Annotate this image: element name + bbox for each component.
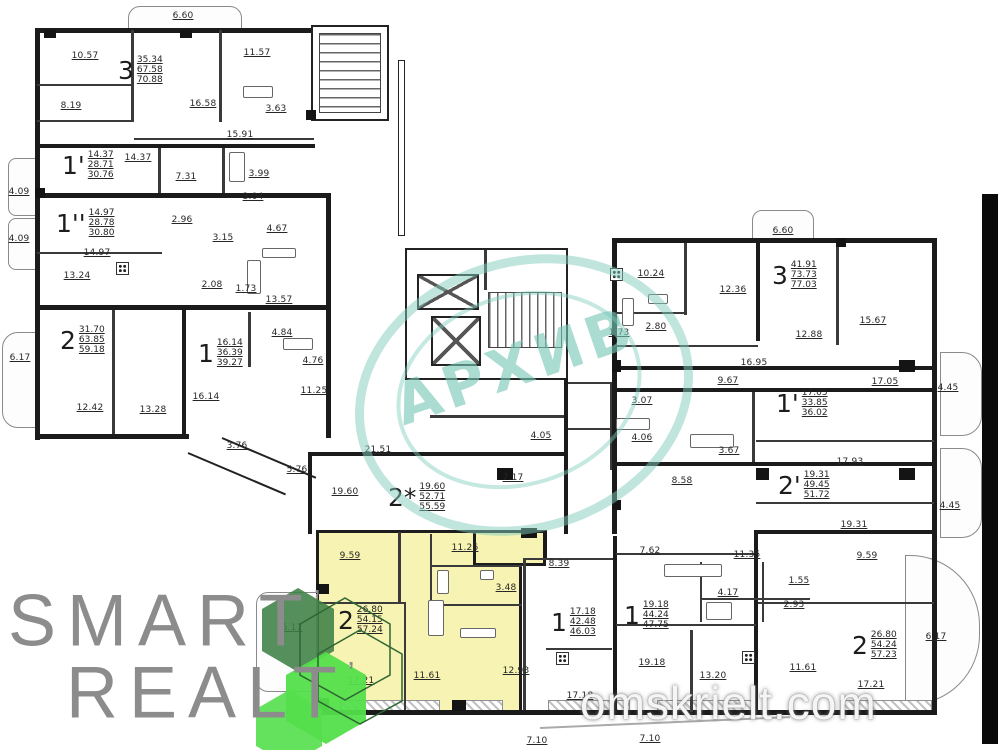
room-area-label: 14.97 <box>84 248 111 258</box>
room-area-label: 4.76 <box>303 356 324 366</box>
site-watermark: omskrielt.com <box>580 676 877 730</box>
right-black-bar <box>982 194 998 744</box>
apartment-areas: 17.0533.8536.02 <box>802 388 828 418</box>
room-area-label: 15.91 <box>227 130 254 140</box>
apartment-label-apt-2-bottom-right: 226.8054.2457.23 <box>852 630 897 660</box>
room-area-label: 3.76 <box>227 441 248 451</box>
room-area-label: 4.45 <box>940 501 961 511</box>
apartment-areas: 14.3728.7130.76 <box>88 150 114 180</box>
apartment-areas: 14.9728.7830.80 <box>89 208 115 238</box>
apartment-number: 1 <box>624 603 640 628</box>
room-area-label: 6.17 <box>10 353 31 363</box>
room-area-label: 6.17 <box>926 632 947 642</box>
logo-text: SMART <box>8 580 314 662</box>
room-area-label: 17.93 <box>837 457 864 467</box>
logo-tick: ’ <box>314 584 321 618</box>
room-area-label: 3.48 <box>496 583 517 593</box>
room-area-label: 4.67 <box>267 224 288 234</box>
apartment-number: 2' <box>778 473 801 498</box>
room-area-label: 4.09 <box>9 187 30 197</box>
room-area-label: 15.67 <box>860 316 887 326</box>
apartment-area-value: 77.03 <box>791 280 817 290</box>
apartment-areas: 31.7063.8559.18 <box>79 325 105 355</box>
room-area-label: 9.59 <box>857 551 878 561</box>
logo-tick: ’ <box>348 656 355 690</box>
logo-line-smart: SMART’ <box>8 584 320 657</box>
apartment-label-apt-1pp-left: 1''14.9728.7830.80 <box>56 208 114 238</box>
room-area-label: 1.55 <box>789 576 810 586</box>
apartment-areas: 35.3467.5870.88 <box>137 55 163 85</box>
apartment-area-value: 30.80 <box>89 228 115 238</box>
apartment-number: 1 <box>551 610 567 635</box>
apartment-label-apt-2p-right: 2'19.3149.4551.72 <box>778 470 830 500</box>
room-area-label: 2.96 <box>172 215 193 225</box>
apartment-area-value: 17.05 <box>802 388 828 398</box>
apartment-label-apt-1p-left: 1'14.3728.7130.76 <box>62 150 114 180</box>
room-area-label: 6.60 <box>173 11 194 21</box>
room-area-label: 3.99 <box>249 169 270 179</box>
room-area-label: 19.60 <box>332 487 359 497</box>
room-area-label: 7.62 <box>640 546 661 556</box>
apartment-area-value: 19.18 <box>643 600 669 610</box>
room-area-label: 9.59 <box>340 551 361 561</box>
apartment-area-value: 28.71 <box>88 160 114 170</box>
apartment-area-value: 63.85 <box>79 335 105 345</box>
apartment-number: 3 <box>118 58 134 83</box>
room-area-label: 3.15 <box>213 233 234 243</box>
room-area-label: 5.76 <box>287 465 308 475</box>
room-area-label: 8.39 <box>549 559 570 569</box>
logo-text: REALT <box>66 652 348 734</box>
apartment-area-value: 28.78 <box>89 218 115 228</box>
apartment-area-value: 59.18 <box>79 345 105 355</box>
apartment-area-value: 54.24 <box>871 640 897 650</box>
apartment-area-value: 17.18 <box>570 607 596 617</box>
apartment-area-value: 19.31 <box>804 470 830 480</box>
room-area-label: 13.57 <box>266 295 293 305</box>
room-area-label: 13.24 <box>64 271 91 281</box>
room-area-label: 12.93 <box>503 666 530 676</box>
apartment-area-value: 67.58 <box>137 65 163 75</box>
apartment-area-value: 49.45 <box>804 480 830 490</box>
apartment-area-value: 70.88 <box>137 75 163 85</box>
apartment-area-value: 39.27 <box>217 358 243 368</box>
room-area-label: 4.09 <box>9 234 30 244</box>
apartment-areas: 17.1842.4846.03 <box>570 607 596 637</box>
apartment-label-apt-1p-right: 1'17.0533.8536.02 <box>776 388 828 418</box>
room-area-label: 14.37 <box>125 153 152 163</box>
room-area-label: 19.18 <box>639 658 666 668</box>
apartment-number: 2 <box>852 633 868 658</box>
room-area-label: 11.35 <box>734 550 761 560</box>
room-area-label: 10.24 <box>638 269 665 279</box>
apartment-area-value: 41.91 <box>791 260 817 270</box>
room-area-label: 1.73 <box>236 284 257 294</box>
apartment-number: 2 <box>60 328 76 353</box>
apartment-area-value: 14.37 <box>88 150 114 160</box>
apartment-area-value: 46.03 <box>570 627 596 637</box>
room-area-label: 2.08 <box>202 280 223 290</box>
apartment-areas: 41.9173.7377.03 <box>791 260 817 290</box>
room-area-label: 2.93 <box>784 600 805 610</box>
room-area-label: 19.31 <box>841 520 868 530</box>
apartment-area-value: 42.48 <box>570 617 596 627</box>
apartment-area-value: 36.39 <box>217 348 243 358</box>
room-area-label: 11.61 <box>790 663 817 673</box>
room-area-label: 16.14 <box>193 392 220 402</box>
room-area-label: 4.17 <box>718 588 739 598</box>
apartment-area-value: 73.73 <box>791 270 817 280</box>
apartment-area-value: 35.34 <box>137 55 163 65</box>
room-area-label: 11.25 <box>301 386 328 396</box>
apartment-area-value: 47.75 <box>643 620 669 630</box>
room-area-label: 4.45 <box>938 383 959 393</box>
room-area-label: 11.61 <box>414 671 441 681</box>
room-area-label: 12.42 <box>77 403 104 413</box>
apartment-label-apt-3-right: 341.9173.7377.03 <box>772 260 817 290</box>
logo-line-realt: REALT’ <box>66 656 354 729</box>
apartment-label-apt-3-top-left: 335.3467.5870.88 <box>118 55 163 85</box>
room-area-label: 7.10 <box>527 736 548 746</box>
room-area-label: 8.58 <box>672 476 693 486</box>
room-area-label: 12.36 <box>720 285 747 295</box>
room-area-label: 17.05 <box>872 377 899 387</box>
room-area-label: 8.19 <box>61 101 82 111</box>
room-area-label: 6.60 <box>773 226 794 236</box>
room-area-label: 11.57 <box>244 48 271 58</box>
room-area-label: 3.67 <box>719 446 740 456</box>
room-area-label: 13.28 <box>140 405 167 415</box>
apartment-areas: 19.1844.2447.75 <box>643 600 669 630</box>
floorplan-canvas: 6.6010.5711.5716.588.193.6315.9114.377.3… <box>0 0 1000 750</box>
apartment-label-apt-1-bottom-b: 119.1844.2447.75 <box>624 600 669 630</box>
room-area-label: 4.84 <box>272 328 293 338</box>
apartment-number: 3 <box>772 263 788 288</box>
apartment-areas: 16.1436.3939.27 <box>217 338 243 368</box>
apartment-label-apt-2-left: 231.7063.8559.18 <box>60 325 105 355</box>
room-area-label: 12.88 <box>796 330 823 340</box>
apartment-area-value: 57.23 <box>871 650 897 660</box>
apartment-area-value: 33.85 <box>802 398 828 408</box>
apartment-number: 1' <box>776 391 799 416</box>
apartment-area-value: 26.80 <box>871 630 897 640</box>
room-area-label: 9.67 <box>718 376 739 386</box>
apartment-areas: 26.8054.2457.23 <box>871 630 897 660</box>
apartment-area-value: 51.72 <box>804 490 830 500</box>
room-area-label: 11.26 <box>452 543 479 553</box>
room-area-label: 10.57 <box>72 51 99 61</box>
apartment-area-value: 14.97 <box>89 208 115 218</box>
apartment-label-apt-1-left: 116.1436.3939.27 <box>198 338 243 368</box>
apartment-area-value: 30.76 <box>88 170 114 180</box>
apartment-areas: 19.3149.4551.72 <box>804 470 830 500</box>
room-area-label: 7.10 <box>640 734 661 744</box>
room-area-label: 16.58 <box>190 99 217 109</box>
apartment-number: 1'' <box>56 211 86 236</box>
room-area-label: 7.31 <box>176 172 197 182</box>
apartment-number: 1' <box>62 153 85 178</box>
room-area-label: 3.04 <box>243 192 264 202</box>
apartment-number: 1 <box>198 341 214 366</box>
apartment-area-value: 31.70 <box>79 325 105 335</box>
apartment-area-value: 44.24 <box>643 610 669 620</box>
apartment-area-value: 36.02 <box>802 408 828 418</box>
room-area-label: 3.63 <box>266 104 287 114</box>
apartment-label-apt-1-bottom-a: 117.1842.4846.03 <box>551 607 596 637</box>
room-area-label: 16.95 <box>741 358 768 368</box>
apartment-area-value: 16.14 <box>217 338 243 348</box>
